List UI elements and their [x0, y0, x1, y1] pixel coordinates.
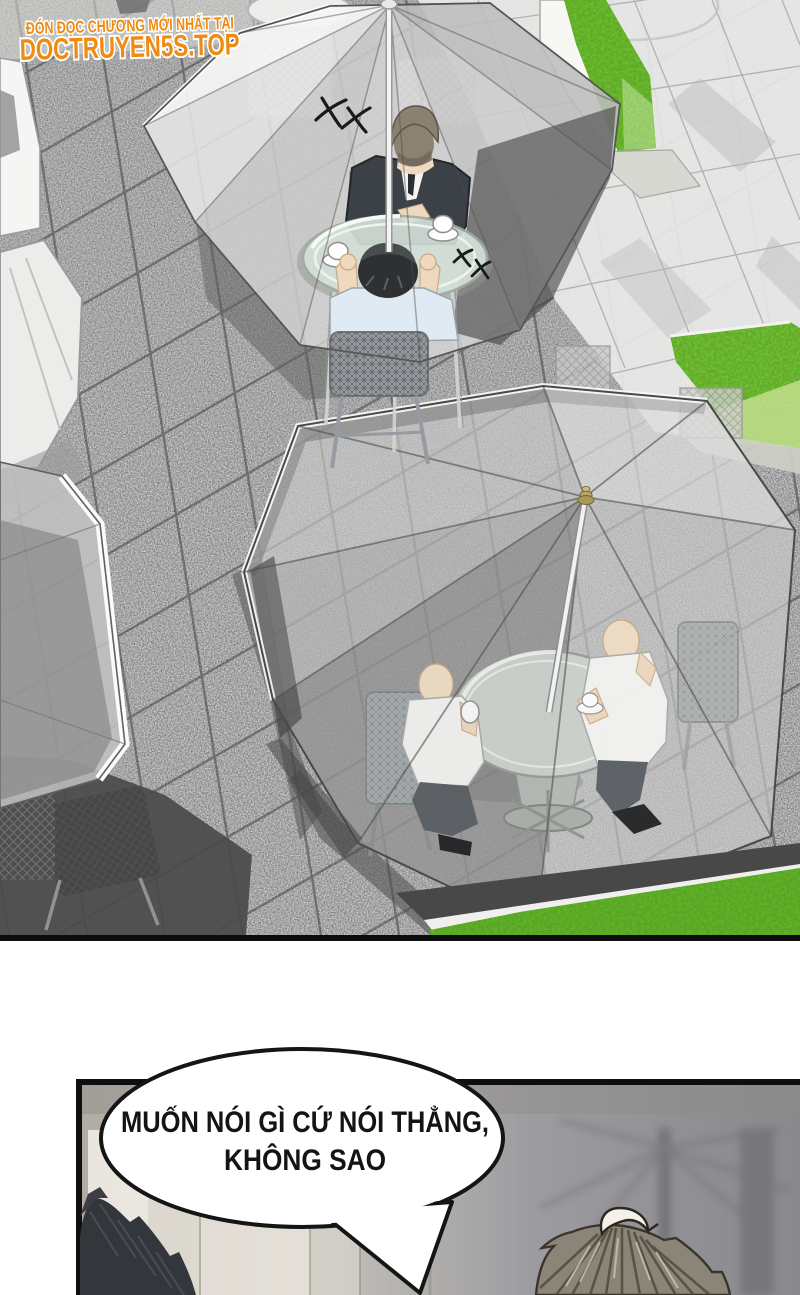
svg-text:KHÔNG SAO: KHÔNG SAO [224, 1143, 386, 1177]
svg-text:DOCTRUYEN5S.TOP: DOCTRUYEN5S.TOP [19, 28, 240, 67]
svg-text:MUỐN NÓI GÌ CỨ NÓI THẲNG,: MUỐN NÓI GÌ CỨ NÓI THẲNG, [121, 1105, 489, 1139]
